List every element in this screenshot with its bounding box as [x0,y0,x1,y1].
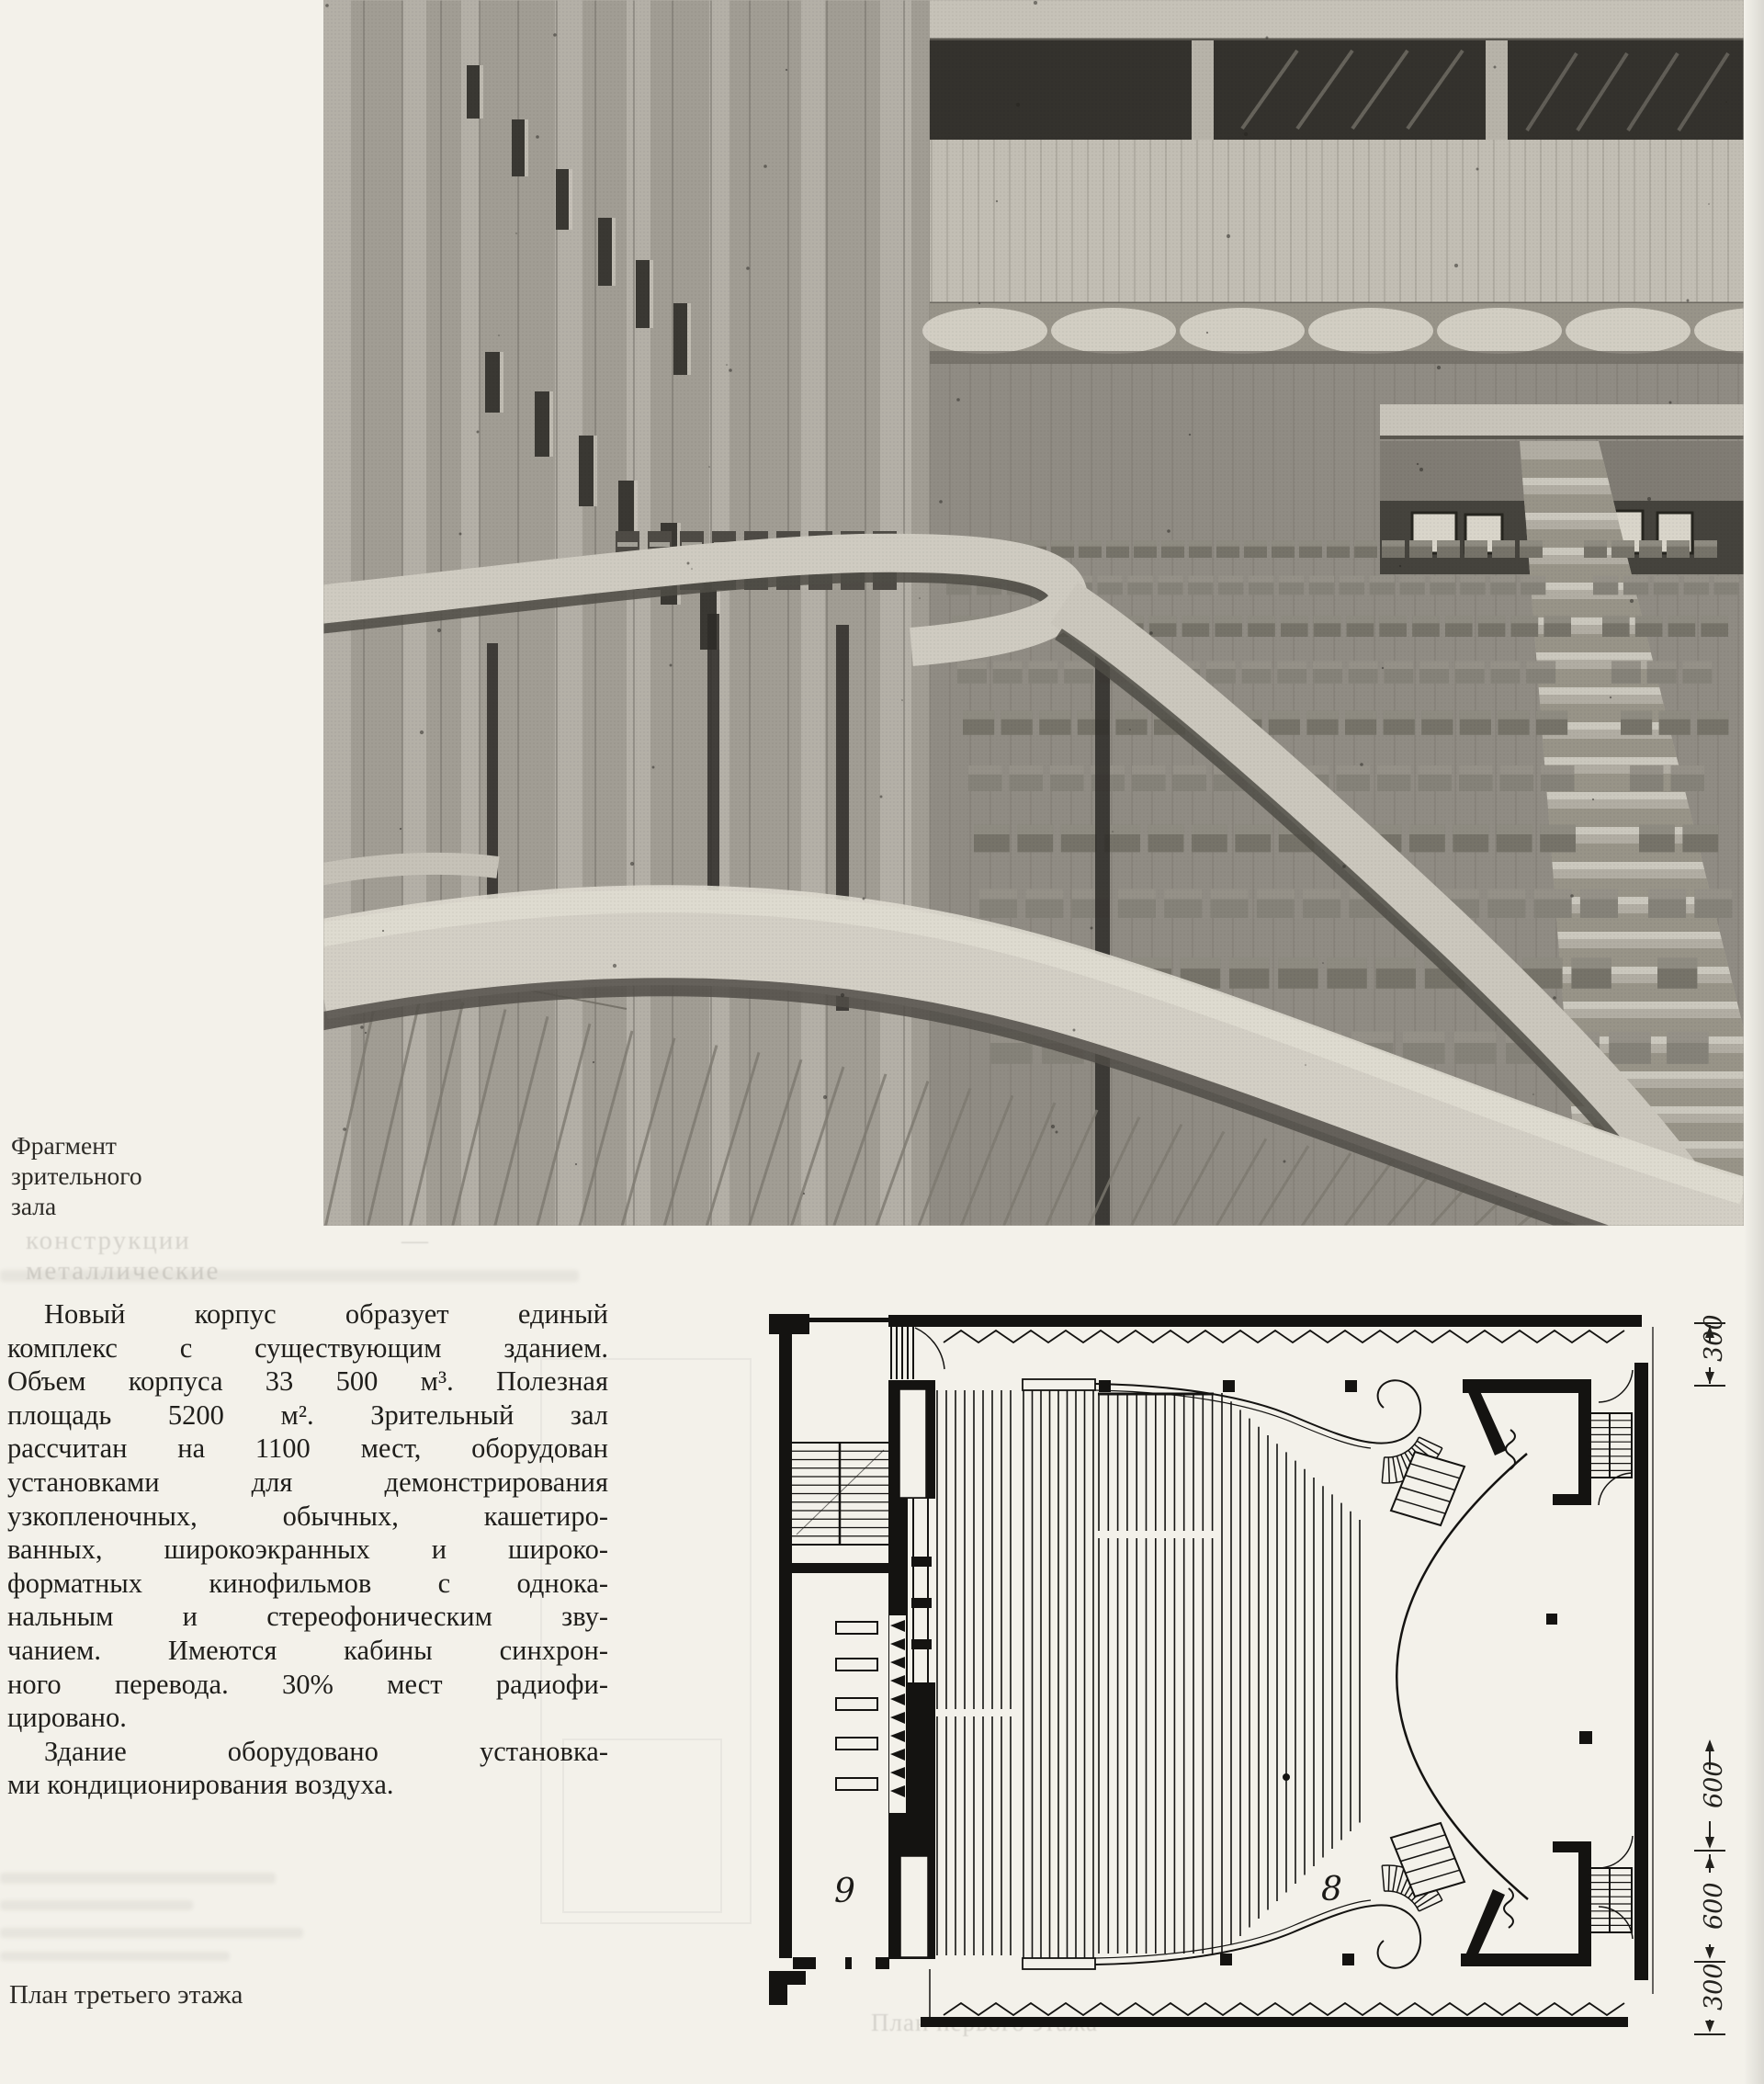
dimension-label: 300 [1700,1963,1728,2010]
dimension-label: 600 [1700,1882,1728,1930]
plan-label-hall: 8 [1321,1871,1342,1908]
text-line: Новый корпус образует единый [7,1297,608,1331]
text-line: комплекс с существующим зданием. [7,1331,608,1365]
photo-caption-line: зрительного [11,1161,222,1191]
text-line: узкопленочных, обычных, кашетиро- [7,1500,608,1534]
floor-plan: 9 8 [755,1285,1683,2061]
text-line: установками для демонстрирования [7,1466,608,1500]
bleedthrough-smudge [0,1270,579,1282]
photo-caption: Фрагмент зрительного зала [11,1130,222,1221]
dimension-label: 300 [1700,1314,1728,1362]
auditorium-photo [323,0,1744,1226]
dimension-label: 600 [1700,1761,1728,1808]
bleedthrough-smudge [0,1873,276,1884]
paragraph: Здание оборудовано установка-ми кондицио… [7,1735,608,1802]
paragraph: Новый корпус образует единыйкомплекс с с… [7,1297,608,1735]
text-line: цировано. [7,1701,608,1735]
text-line: ванных, широкоэкранных и широко- [7,1533,608,1567]
text-line: нальным и стереофоническим зву- [7,1600,608,1634]
photo-caption-line: зала [11,1191,222,1221]
plan-label-side-room: 9 [834,1873,855,1910]
text-line: рассчитан на 1100 мест, оборудован [7,1432,608,1466]
bleedthrough-smudge [0,1900,193,1910]
text-line: Объем корпуса 33 500 м³. Полезная [7,1365,608,1399]
text-line: Здание оборудовано установка- [7,1735,608,1769]
text-line: чанием. Имеются кабины синхрон- [7,1634,608,1668]
plan-caption: План третьего этажа [9,1980,243,2010]
bleedthrough-smudge [0,1928,303,1938]
text-line: ми кондиционирования воздуха. [7,1768,608,1802]
page-edge-shade [1744,0,1764,2084]
floor-plan-drawing: 9 8 [755,1285,1683,2061]
book-page: Фрагмент зрительного зала конструкции — … [0,0,1764,2084]
text-line: площадь 5200 м². Зрительный зал [7,1399,608,1433]
body-text: Новый корпус образует единыйкомплекс с с… [7,1297,608,1802]
text-line: ного перевода. 30% мест радиофи- [7,1668,608,1702]
bleedthrough-smudge [0,1952,230,1961]
text-line: форматных кинофильмов с однока- [7,1567,608,1601]
auditorium-photo-illustration [323,0,1744,1226]
photo-caption-line: Фрагмент [11,1130,222,1161]
